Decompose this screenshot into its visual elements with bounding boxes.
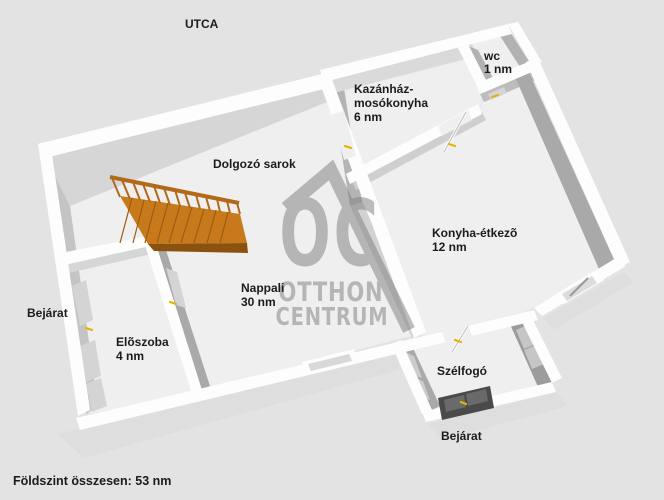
- kazanhaz-label-line1: Kazánház-: [354, 82, 413, 96]
- bejarat-left-label: Bejárat: [27, 306, 68, 320]
- watermark-logo-text: OC: [279, 181, 380, 287]
- nappali-label: Nappali: [241, 281, 284, 295]
- kazanhaz-label-line2: mosókonyha: [354, 96, 428, 110]
- street-label: UTCA: [185, 17, 219, 31]
- kazanhaz-area: 6 nm: [354, 110, 382, 124]
- nappali-area: 30 nm: [241, 295, 276, 309]
- eloszoba-area: 4 nm: [116, 349, 144, 363]
- eloszoba-label: Elõszoba: [116, 335, 169, 349]
- watermark-brand-line2: CENTRUM: [276, 303, 389, 332]
- floorplan-canvas: OC OTTHON CENTRUM UTCA wc 1 nm Kazánház-…: [0, 0, 664, 500]
- wc-area: 1 nm: [484, 62, 512, 76]
- konyha-label: Konyha-étkezõ: [432, 226, 517, 240]
- konyha-area: 12 nm: [432, 240, 467, 254]
- bejarat-front-label: Bejárat: [441, 429, 482, 443]
- szelfogo-label: Szélfogó: [437, 364, 487, 378]
- dolgozo-sarok-label: Dolgozó sarok: [213, 157, 296, 171]
- total-area-label: Földszint összesen: 53 nm: [13, 474, 171, 488]
- wc-label: wc: [483, 49, 500, 63]
- floorplan-drawing: OC OTTHON CENTRUM UTCA wc 1 nm Kazánház-…: [0, 0, 664, 500]
